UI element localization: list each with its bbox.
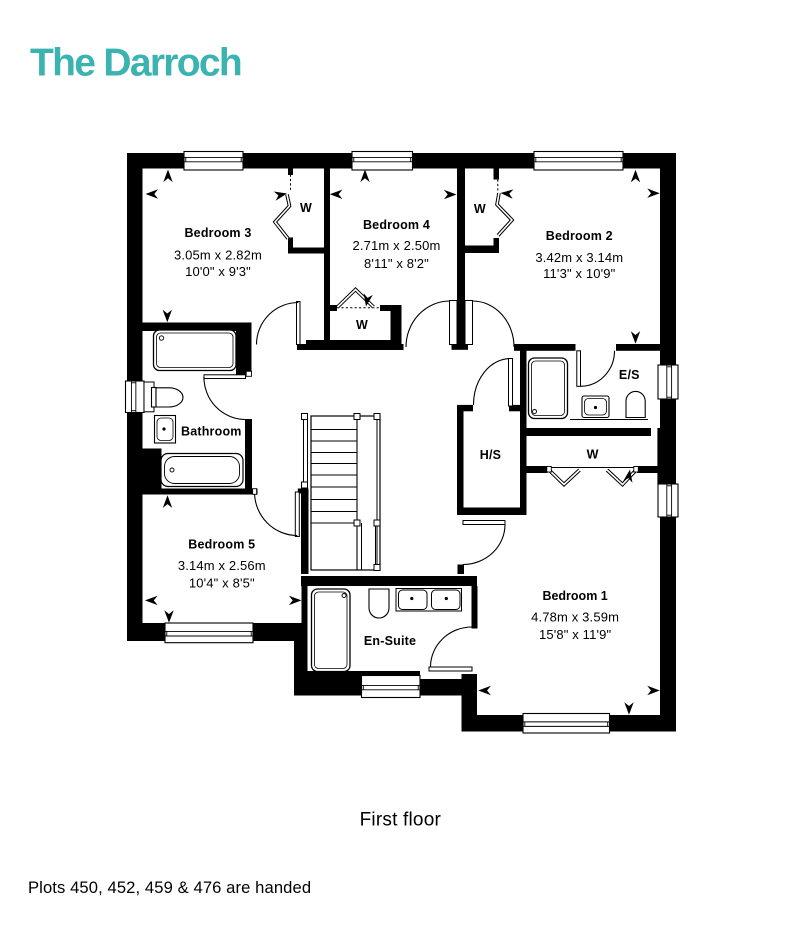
svg-text:8'11" x 8'2": 8'11" x 8'2": [364, 256, 429, 271]
svg-text:Bedroom 1: Bedroom 1: [542, 589, 607, 603]
svg-text:First floor: First floor: [360, 810, 442, 831]
svg-text:W: W: [300, 201, 312, 215]
svg-text:Bedroom 2: Bedroom 2: [546, 229, 613, 243]
svg-text:Bedroom 4: Bedroom 4: [363, 218, 430, 232]
svg-text:Bedroom 5: Bedroom 5: [188, 537, 255, 551]
svg-text:3.05m x 2.82m: 3.05m x 2.82m: [174, 248, 262, 263]
svg-text:3.42m x 3.14m: 3.42m x 3.14m: [535, 250, 623, 265]
svg-text:11'3" x 10'9": 11'3" x 10'9": [543, 266, 616, 281]
svg-text:Bedroom 3: Bedroom 3: [184, 226, 251, 240]
svg-text:3.14m x 2.56m: 3.14m x 2.56m: [178, 558, 266, 573]
svg-text:10'4" x 8'5": 10'4" x 8'5": [189, 576, 255, 591]
svg-text:H/S: H/S: [480, 448, 501, 462]
svg-text:En-Suite: En-Suite: [364, 634, 416, 648]
svg-text:E/S: E/S: [619, 368, 640, 382]
svg-text:2.71m x 2.50m: 2.71m x 2.50m: [353, 238, 441, 253]
svg-text:W: W: [587, 447, 599, 461]
svg-text:4.78m x 3.59m: 4.78m x 3.59m: [531, 609, 619, 624]
svg-text:The Darroch: The Darroch: [30, 42, 241, 85]
svg-text:W: W: [356, 318, 368, 332]
svg-text:10'0" x 9'3": 10'0" x 9'3": [185, 264, 251, 279]
svg-text:15'8" x 11'9": 15'8" x 11'9": [539, 627, 612, 642]
svg-text:Bathroom: Bathroom: [181, 425, 242, 439]
svg-text:W: W: [474, 202, 486, 216]
svg-text:Plots 450, 452, 459 & 476 are: Plots 450, 452, 459 & 476 are handed: [28, 878, 311, 897]
